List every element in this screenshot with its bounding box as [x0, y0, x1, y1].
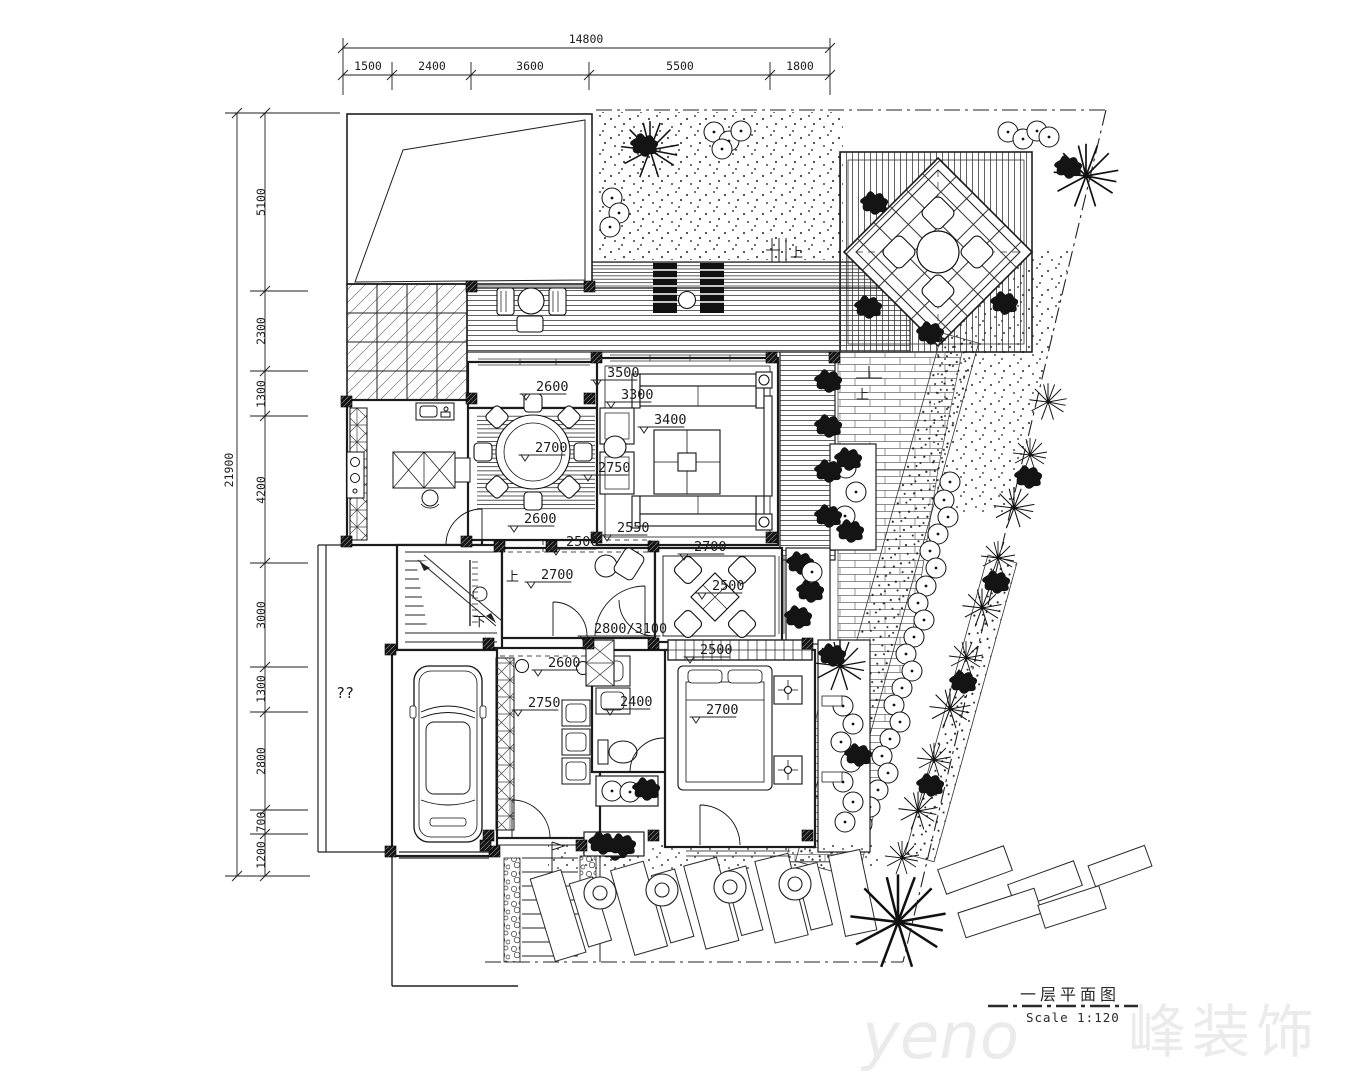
dim-left-seg-1: 5100 — [254, 188, 268, 216]
floor-plan-drawing: yeno 峰装饰 — [0, 0, 1350, 1080]
dim-left-seg-5: 3000 — [254, 601, 268, 629]
svg-text:2700: 2700 — [535, 440, 568, 456]
stair-up-label: 上 — [506, 570, 519, 585]
dim-left-seg-4: 4200 — [254, 476, 268, 504]
svg-text:2500: 2500 — [712, 578, 745, 594]
car — [410, 666, 486, 842]
drawing-title: 一层平面图 — [1020, 985, 1120, 1004]
svg-text:2500: 2500 — [566, 534, 599, 550]
tv-cabinet — [764, 396, 772, 496]
svg-text:2750: 2750 — [598, 460, 631, 476]
dim-top-seg-3: 3600 — [516, 59, 544, 73]
dim-left-seg-9: 1200 — [254, 841, 268, 869]
watermark-cjk: 峰装饰 — [1128, 998, 1320, 1066]
garden-bottom — [392, 837, 1152, 986]
svg-text:2800/3100: 2800/3100 — [594, 621, 667, 637]
dim-top-seg-2: 2400 — [418, 59, 446, 73]
svg-text:3400: 3400 — [654, 412, 687, 428]
dim-top-seg-5: 1800 — [786, 59, 814, 73]
dimension-chain-top: 14800 1500 2400 3600 5500 1800 — [338, 32, 835, 95]
svg-text:2400: 2400 — [620, 694, 653, 710]
toilet — [598, 740, 637, 764]
driveway-edge — [318, 545, 392, 852]
floor-plan-sheet: yeno 峰装饰 — [0, 0, 1350, 1080]
deck-side-table — [679, 292, 696, 309]
stair-down-label: 下 — [473, 615, 486, 630]
hall-table — [595, 555, 617, 577]
svg-text:2700: 2700 — [694, 539, 727, 555]
svg-text:2700: 2700 — [706, 702, 739, 718]
dim-left-seg-6: 1300 — [254, 675, 268, 703]
dim-left-seg-8: 700 — [254, 812, 268, 833]
svg-text:2750: 2750 — [528, 695, 561, 711]
dim-left-seg-2: 2300 — [254, 317, 268, 345]
dim-top-seg-1: 1500 — [354, 59, 382, 73]
carport-canopy — [347, 114, 592, 284]
svg-text:2700: 2700 — [541, 567, 574, 583]
planting-bed-east — [815, 640, 873, 852]
svg-text:2600: 2600 — [536, 379, 569, 395]
unknown-label: ?? — [336, 684, 354, 702]
dim-left-seg-7: 2800 — [254, 747, 268, 775]
svg-text:2500: 2500 — [700, 642, 733, 658]
drawing-scale: Scale 1:120 — [1026, 1010, 1120, 1025]
dim-left-seg-3: 1300 — [254, 380, 268, 408]
deck-up-label: 上 — [790, 246, 803, 261]
svg-text:2600: 2600 — [548, 655, 581, 671]
skylight-grid — [347, 284, 467, 400]
dim-top-seg-4: 5500 — [666, 59, 694, 73]
dim-left-total: 21900 — [222, 453, 236, 488]
planter-tea-east — [784, 548, 830, 644]
svg-text:3300: 3300 — [621, 387, 654, 403]
side-table — [604, 436, 626, 458]
svg-text:2600: 2600 — [524, 511, 557, 527]
dim-top-total: 14800 — [569, 32, 604, 46]
patio-up-label: 上 — [856, 388, 869, 403]
watermark-latin: yeno — [860, 1000, 1019, 1074]
svg-text:2550: 2550 — [617, 520, 650, 536]
stool — [422, 490, 438, 506]
dimension-chain-left: 21900 5100 2300 1300 4200 3000 1300 2800… — [222, 108, 340, 881]
svg-text:3500: 3500 — [607, 365, 640, 381]
utility-cabinets — [496, 658, 514, 830]
planter-patio-west — [830, 444, 876, 550]
pergola-table — [917, 231, 959, 273]
